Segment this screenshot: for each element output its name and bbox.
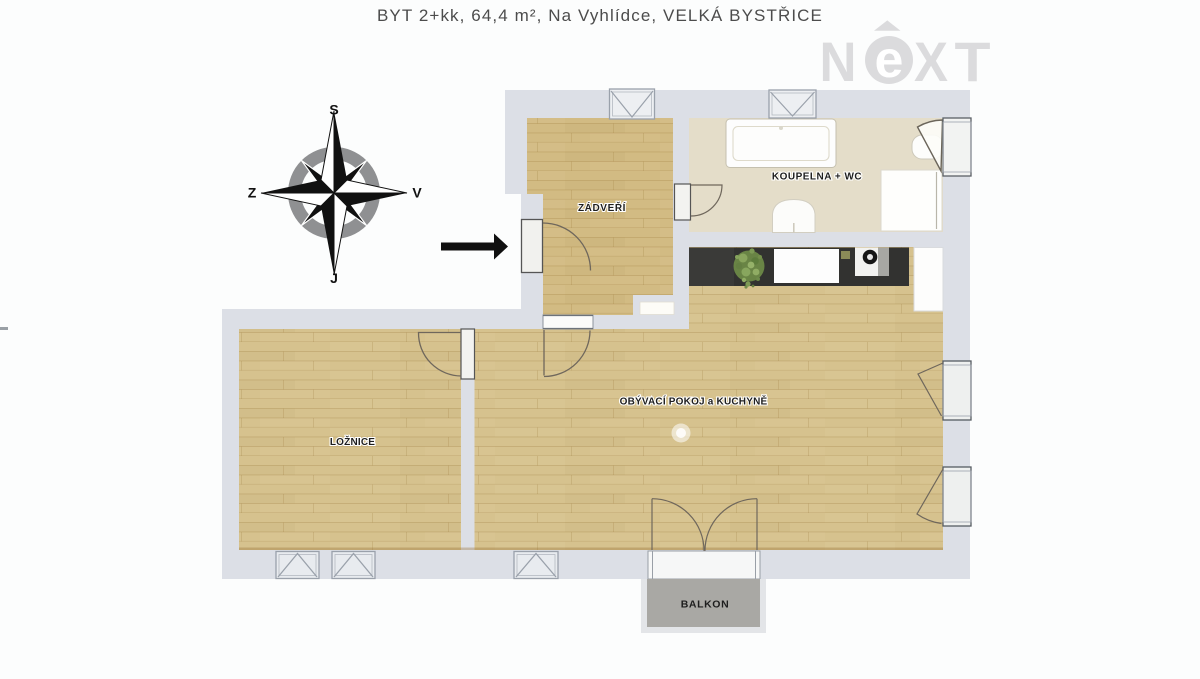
svg-text:V: V xyxy=(412,185,422,201)
svg-text:Z: Z xyxy=(248,185,257,201)
svg-text:LOŽNICE: LOŽNICE xyxy=(330,435,375,448)
svg-text:N: N xyxy=(820,30,857,93)
svg-text:J: J xyxy=(330,270,338,286)
svg-text:BALKON: BALKON xyxy=(681,599,730,611)
svg-text:X: X xyxy=(914,30,948,93)
svg-text:BYT 2+kk, 64,4 m², Na Vyhlídce: BYT 2+kk, 64,4 m², Na Vyhlídce, VELKÁ BY… xyxy=(377,6,823,25)
svg-text:KOUPELNA + WC: KOUPELNA + WC xyxy=(772,172,862,183)
svg-text:ZÁDVEŘÍ: ZÁDVEŘÍ xyxy=(578,201,626,214)
svg-text:T: T xyxy=(955,30,991,93)
svg-text:OBÝVACÍ POKOJ a KUCHYNĚ: OBÝVACÍ POKOJ a KUCHYNĚ xyxy=(620,395,768,408)
svg-text:S: S xyxy=(329,102,338,118)
svg-text:e: e xyxy=(875,31,904,89)
